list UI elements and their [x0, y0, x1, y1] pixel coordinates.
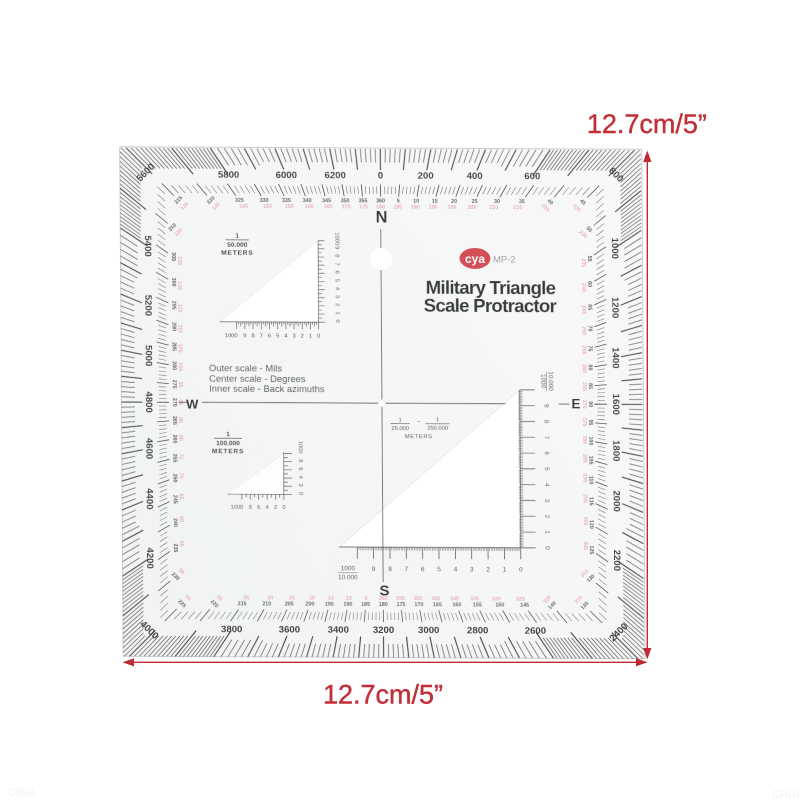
- svg-text:160: 160: [305, 204, 314, 210]
- svg-text:0: 0: [519, 567, 523, 574]
- svg-text:75: 75: [177, 453, 183, 459]
- svg-text:250.000: 250.000: [427, 426, 448, 432]
- svg-text:270: 270: [581, 400, 587, 409]
- svg-text:0: 0: [297, 492, 303, 495]
- svg-text:265: 265: [171, 416, 177, 425]
- svg-text:C59A: C59A: [8, 787, 36, 799]
- svg-text:290: 290: [581, 473, 587, 482]
- svg-text:5: 5: [437, 566, 441, 573]
- svg-text:300: 300: [170, 278, 176, 287]
- svg-text:1: 1: [334, 311, 340, 314]
- svg-text:150: 150: [263, 204, 272, 210]
- svg-text:3600: 3600: [279, 624, 300, 635]
- svg-text:200: 200: [447, 205, 456, 211]
- svg-text:50.000: 50.000: [227, 242, 248, 249]
- svg-text:210: 210: [489, 205, 498, 211]
- svg-text:MP-2: MP-2: [493, 255, 516, 266]
- svg-text:0: 0: [334, 319, 340, 322]
- svg-text:350: 350: [413, 596, 422, 602]
- svg-text:2: 2: [297, 484, 303, 487]
- svg-text:1: 1: [235, 233, 239, 240]
- svg-text:3200: 3200: [373, 625, 394, 636]
- svg-text:125: 125: [176, 256, 182, 265]
- svg-text:1: 1: [309, 334, 312, 340]
- svg-text:6: 6: [257, 505, 260, 511]
- svg-text:8: 8: [333, 254, 339, 257]
- svg-text:340: 340: [450, 596, 459, 602]
- svg-text:6: 6: [543, 451, 550, 455]
- svg-text:2200: 2200: [611, 550, 622, 571]
- svg-text:7: 7: [260, 334, 263, 340]
- svg-text:180: 180: [379, 602, 388, 608]
- svg-text:215: 215: [238, 601, 247, 607]
- svg-text:8: 8: [297, 459, 303, 462]
- svg-text:260: 260: [581, 364, 587, 373]
- svg-text:100: 100: [177, 362, 183, 371]
- svg-text:6: 6: [268, 334, 271, 340]
- svg-text:Inner scale - Back azimuths: Inner scale - Back azimuths: [209, 383, 325, 395]
- svg-text:280: 280: [581, 435, 587, 444]
- svg-text:0: 0: [378, 170, 383, 181]
- svg-text:210: 210: [262, 601, 271, 607]
- svg-text:345: 345: [431, 596, 440, 602]
- svg-text:335: 335: [470, 596, 479, 602]
- svg-text:W: W: [186, 396, 199, 411]
- svg-text:190: 190: [411, 205, 420, 211]
- svg-text:2600: 2600: [525, 626, 546, 637]
- svg-text:2: 2: [334, 303, 340, 306]
- svg-text:1400: 1400: [610, 347, 621, 368]
- svg-text:255: 255: [171, 454, 177, 463]
- svg-text:1: 1: [399, 417, 402, 423]
- svg-text:3: 3: [292, 334, 295, 340]
- svg-text:12.7cm/5”: 12.7cm/5”: [587, 109, 707, 139]
- svg-text:4200: 4200: [144, 547, 155, 568]
- svg-text:5: 5: [543, 467, 550, 471]
- svg-text:5200: 5200: [142, 295, 153, 316]
- svg-text:4: 4: [543, 483, 550, 487]
- svg-text:120: 120: [176, 281, 182, 290]
- svg-text:2: 2: [274, 505, 277, 511]
- svg-text:3: 3: [543, 499, 550, 503]
- svg-text:6: 6: [421, 566, 425, 573]
- svg-text:5: 5: [334, 279, 340, 282]
- svg-text:METERS: METERS: [221, 250, 253, 257]
- svg-text:3000: 3000: [418, 625, 439, 636]
- svg-text:170: 170: [342, 204, 351, 210]
- svg-text:240: 240: [172, 518, 178, 527]
- svg-text:8: 8: [542, 420, 549, 424]
- svg-text:1800: 1800: [610, 440, 621, 461]
- svg-text:1: 1: [543, 530, 550, 534]
- svg-text:55: 55: [178, 541, 184, 547]
- svg-text:10.000: 10.000: [547, 371, 554, 391]
- svg-text:2: 2: [543, 515, 550, 519]
- svg-text:250: 250: [171, 474, 177, 483]
- svg-text:155: 155: [285, 204, 294, 210]
- svg-text:5400: 5400: [142, 235, 153, 256]
- svg-text:7: 7: [542, 436, 549, 440]
- svg-text:245: 245: [172, 495, 178, 504]
- svg-text:3: 3: [334, 295, 340, 298]
- svg-text:0: 0: [317, 334, 320, 340]
- svg-text:305: 305: [170, 252, 176, 261]
- svg-text:115: 115: [176, 304, 182, 313]
- svg-text:15: 15: [328, 596, 334, 602]
- svg-text:285: 285: [581, 454, 587, 463]
- svg-text:235: 235: [172, 543, 178, 552]
- svg-text:1600: 1600: [610, 394, 621, 415]
- svg-text:METERS: METERS: [212, 448, 244, 455]
- svg-text:2800: 2800: [467, 625, 488, 636]
- svg-text:330: 330: [492, 597, 501, 603]
- svg-text:9: 9: [372, 566, 376, 573]
- svg-text:4: 4: [454, 566, 458, 573]
- svg-text:7: 7: [334, 262, 340, 265]
- svg-text:1200: 1200: [609, 297, 620, 318]
- svg-text:25.000: 25.000: [391, 426, 409, 432]
- svg-text:1000: 1000: [539, 374, 546, 389]
- svg-text:285: 285: [171, 342, 177, 351]
- svg-text:6: 6: [334, 271, 340, 274]
- svg-text:200: 200: [305, 602, 314, 608]
- svg-text:145: 145: [239, 204, 248, 210]
- svg-text:10.000: 10.000: [338, 574, 358, 581]
- svg-text:5: 5: [365, 596, 368, 602]
- svg-text:3800: 3800: [221, 624, 242, 635]
- svg-text:155: 155: [473, 602, 482, 608]
- svg-text:2: 2: [486, 567, 490, 574]
- svg-text:195: 195: [325, 602, 334, 608]
- svg-text:3400: 3400: [328, 625, 349, 636]
- svg-text:235: 235: [580, 258, 586, 267]
- svg-text:215: 215: [513, 205, 522, 211]
- svg-text:260: 260: [171, 434, 177, 443]
- svg-text:1: 1: [436, 417, 439, 423]
- svg-text:8: 8: [249, 505, 252, 511]
- svg-text:1000: 1000: [609, 238, 620, 259]
- svg-text:1000: 1000: [231, 505, 243, 511]
- svg-text:240: 240: [580, 283, 586, 292]
- svg-text:60: 60: [178, 516, 184, 522]
- svg-text:245: 245: [580, 306, 586, 315]
- svg-text:205: 205: [467, 205, 476, 211]
- svg-text:165: 165: [324, 204, 333, 210]
- svg-text:185: 185: [361, 602, 370, 608]
- svg-text:E: E: [571, 397, 580, 412]
- svg-text:145: 145: [520, 603, 529, 609]
- svg-text:250: 250: [580, 326, 586, 335]
- svg-text:CHUA: CHUA: [772, 789, 800, 800]
- svg-text:170: 170: [414, 602, 423, 608]
- svg-text:255: 255: [581, 346, 587, 355]
- svg-text:6200: 6200: [325, 170, 346, 181]
- svg-text:325: 325: [516, 597, 525, 603]
- svg-text:9: 9: [243, 333, 246, 339]
- svg-text:Scale Protractor: Scale Protractor: [424, 295, 557, 317]
- svg-text:300: 300: [582, 516, 588, 525]
- svg-text:160: 160: [452, 602, 461, 608]
- svg-text:200: 200: [418, 171, 434, 182]
- svg-text:5: 5: [276, 334, 279, 340]
- svg-text:295: 295: [582, 494, 588, 503]
- svg-text:195: 195: [429, 205, 438, 211]
- svg-text:2: 2: [301, 334, 304, 340]
- svg-text:cya: cya: [465, 252, 485, 266]
- svg-text:265: 265: [581, 382, 587, 391]
- svg-text:N: N: [375, 208, 387, 226]
- svg-text:600: 600: [524, 171, 540, 182]
- svg-text:290: 290: [170, 322, 176, 331]
- svg-text:185: 185: [393, 205, 402, 211]
- svg-text:150: 150: [495, 603, 504, 609]
- svg-text:95: 95: [177, 382, 183, 388]
- svg-text:85: 85: [177, 417, 183, 423]
- svg-text:5800: 5800: [218, 170, 239, 181]
- svg-text:METERS: METERS: [405, 434, 433, 440]
- svg-text:70: 70: [177, 473, 183, 479]
- svg-text:275: 275: [171, 380, 177, 389]
- svg-text:355: 355: [396, 596, 405, 602]
- svg-text:1000: 1000: [333, 232, 339, 245]
- svg-text:6: 6: [297, 467, 303, 470]
- svg-text:9: 9: [333, 246, 339, 249]
- svg-text:295: 295: [170, 301, 176, 310]
- svg-text:4400: 4400: [144, 488, 155, 509]
- svg-text:4800: 4800: [143, 391, 154, 412]
- svg-text:10: 10: [346, 596, 352, 602]
- svg-text:8: 8: [388, 566, 392, 573]
- svg-text:175: 175: [397, 602, 406, 608]
- svg-text:275: 275: [581, 417, 587, 426]
- svg-text:5000: 5000: [143, 345, 154, 366]
- svg-text:400: 400: [467, 171, 483, 182]
- svg-text:1: 1: [503, 567, 507, 574]
- svg-text:110: 110: [176, 324, 182, 333]
- svg-text:0: 0: [543, 546, 550, 550]
- svg-text:12.7cm/5”: 12.7cm/5”: [323, 680, 443, 710]
- svg-text:25: 25: [289, 596, 295, 602]
- svg-text:100.000: 100.000: [216, 440, 240, 447]
- svg-text:9: 9: [542, 404, 549, 408]
- svg-text:65: 65: [178, 494, 184, 500]
- svg-text:175: 175: [359, 204, 368, 210]
- svg-text:2000: 2000: [611, 490, 622, 511]
- svg-text:165: 165: [433, 602, 442, 608]
- svg-text:190: 190: [343, 602, 352, 608]
- svg-text:1000: 1000: [341, 565, 356, 572]
- svg-text:0: 0: [282, 505, 285, 511]
- svg-text:1: 1: [226, 431, 230, 438]
- svg-text:S: S: [379, 582, 389, 599]
- svg-text:280: 280: [171, 361, 177, 370]
- svg-text:35: 35: [243, 595, 249, 601]
- svg-text:7: 7: [405, 566, 409, 573]
- svg-text:30: 30: [267, 595, 273, 601]
- svg-text:4: 4: [266, 505, 269, 511]
- svg-text:105: 105: [177, 344, 183, 353]
- svg-text:1000: 1000: [297, 441, 303, 453]
- svg-text:80: 80: [177, 435, 183, 441]
- svg-text:4: 4: [297, 476, 303, 479]
- svg-text:1000: 1000: [225, 333, 238, 339]
- svg-text:20: 20: [309, 596, 315, 602]
- svg-text:6000: 6000: [276, 170, 297, 181]
- svg-text:305: 305: [582, 541, 588, 550]
- svg-text:8: 8: [251, 333, 254, 339]
- svg-text:4600: 4600: [143, 438, 154, 459]
- svg-text:205: 205: [285, 602, 294, 608]
- svg-text:270: 270: [171, 398, 177, 407]
- svg-text:3: 3: [470, 567, 474, 574]
